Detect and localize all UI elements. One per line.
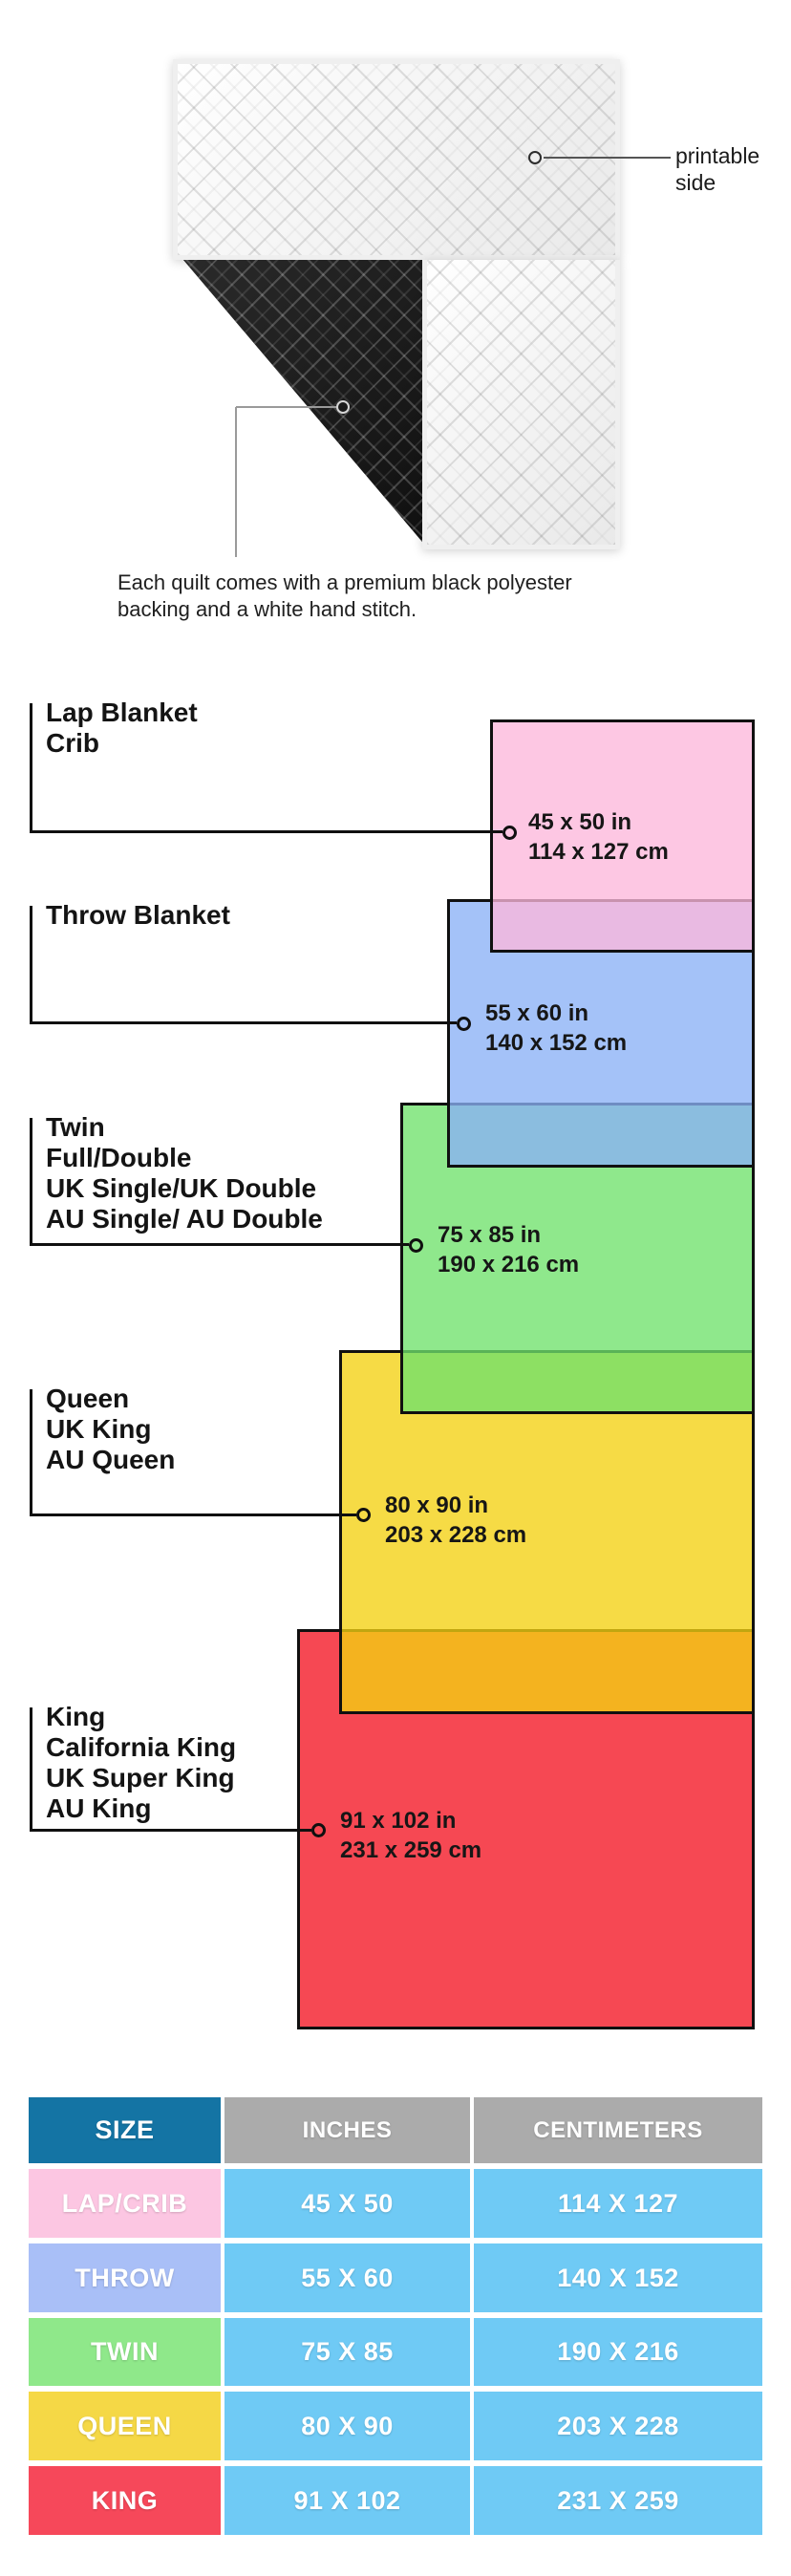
connector-line-king (30, 1829, 311, 1832)
quilt-front-lower-image (422, 260, 620, 549)
connector-dot-queen-icon (356, 1508, 371, 1522)
size-text-queen-inches: 80 x 90 in (385, 1491, 526, 1520)
printable-side-label-line1: printable (675, 142, 759, 169)
table-row-queen-size: QUEEN (29, 2392, 221, 2460)
size-text-twin: 75 x 85 in 190 x 216 cm (438, 1220, 579, 1279)
connector-dot-throw-icon (457, 1017, 471, 1031)
size-text-lap-inches: 45 x 50 in (528, 807, 669, 837)
quilt-caption-line2: backing and a white hand stitch. (118, 596, 572, 623)
table-row-throw-inches: 55 X 60 (224, 2243, 470, 2312)
label-twin-line4: AU Single/ AU Double (46, 1204, 323, 1234)
bracket-line-king (30, 1707, 32, 1832)
bracket-line-lap (30, 703, 32, 833)
size-text-queen: 80 x 90 in 203 x 228 cm (385, 1491, 526, 1550)
label-queen-line1: Queen (46, 1384, 175, 1414)
printable-side-callout-line (544, 157, 671, 159)
table-row-king-inches: 91 X 102 (224, 2466, 470, 2535)
bracket-line-queen (30, 1389, 32, 1516)
connector-dot-lap-icon (502, 826, 517, 840)
label-king-line3: UK Super King (46, 1763, 236, 1793)
bracket-line-throw (30, 906, 32, 1024)
label-twin: Twin Full/Double UK Single/UK Double AU … (46, 1112, 323, 1234)
label-king: King California King UK Super King AU Ki… (46, 1702, 236, 1824)
size-text-king-inches: 91 x 102 in (340, 1806, 481, 1835)
size-text-throw-inches: 55 x 60 in (485, 998, 627, 1028)
size-chart-infographic: printable side Each quilt comes with a p… (0, 0, 791, 2576)
table-row-twin-size: TWIN (29, 2318, 221, 2386)
backing-callout-dot-icon (336, 400, 350, 414)
table-row-king-size: KING (29, 2466, 221, 2535)
connector-line-lap (30, 830, 502, 833)
label-twin-line1: Twin (46, 1112, 323, 1143)
table-header-size: SIZE (29, 2097, 221, 2163)
label-twin-line3: UK Single/UK Double (46, 1173, 323, 1204)
table-row-throw-cm: 140 X 152 (474, 2243, 762, 2312)
size-text-twin-inches: 75 x 85 in (438, 1220, 579, 1250)
size-text-throw: 55 x 60 in 140 x 152 cm (485, 998, 627, 1058)
connector-line-throw (30, 1021, 457, 1024)
table-row-queen-cm: 203 X 228 (474, 2392, 762, 2460)
backing-callout-line-horizontal (236, 406, 336, 408)
connector-dot-king-icon (311, 1823, 326, 1837)
table-header-inches: INCHES (224, 2097, 470, 2163)
label-queen-line3: AU Queen (46, 1445, 175, 1475)
table-row-lap-size: LAP/CRIB (29, 2169, 221, 2238)
printable-side-label-line2: side (675, 169, 759, 196)
table-row-lap-cm: 114 X 127 (474, 2169, 762, 2238)
size-text-lap: 45 x 50 in 114 x 127 cm (528, 807, 669, 867)
label-lap-crib-line1: Lap Blanket (46, 698, 198, 728)
table-row-queen-inches: 80 X 90 (224, 2392, 470, 2460)
label-king-line4: AU King (46, 1793, 236, 1824)
size-text-throw-cm: 140 x 152 cm (485, 1028, 627, 1058)
label-throw-line1: Throw Blanket (46, 900, 230, 931)
size-text-lap-cm: 114 x 127 cm (528, 837, 669, 867)
size-text-king-cm: 231 x 259 cm (340, 1835, 481, 1865)
label-lap-crib-line2: Crib (46, 728, 198, 759)
size-table: SIZE INCHES CENTIMETERS LAP/CRIB 45 X 50… (29, 2097, 762, 2535)
quilt-caption: Each quilt comes with a premium black po… (118, 569, 572, 623)
printable-side-callout-dot-icon (528, 151, 542, 164)
label-throw: Throw Blanket (46, 900, 230, 931)
table-row-throw-size: THROW (29, 2243, 221, 2312)
connector-dot-twin-icon (409, 1238, 423, 1253)
size-text-king: 91 x 102 in 231 x 259 cm (340, 1806, 481, 1865)
label-king-line2: California King (46, 1732, 236, 1763)
backing-callout-line-vertical (235, 407, 237, 557)
printable-side-label: printable side (675, 142, 759, 196)
size-text-twin-cm: 190 x 216 cm (438, 1250, 579, 1279)
label-king-line1: King (46, 1702, 236, 1732)
table-row-twin-inches: 75 X 85 (224, 2318, 470, 2386)
table-header-centimeters: CENTIMETERS (474, 2097, 762, 2163)
label-lap-crib: Lap Blanket Crib (46, 698, 198, 759)
connector-line-twin (30, 1243, 409, 1246)
size-text-queen-cm: 203 x 228 cm (385, 1520, 526, 1550)
quilt-caption-line1: Each quilt comes with a premium black po… (118, 569, 572, 596)
label-queen-line2: UK King (46, 1414, 175, 1445)
bracket-line-twin (30, 1118, 32, 1246)
label-queen: Queen UK King AU Queen (46, 1384, 175, 1475)
quilt-black-backing-fold (183, 260, 422, 542)
connector-line-queen (30, 1513, 356, 1516)
table-row-king-cm: 231 X 259 (474, 2466, 762, 2535)
quilt-front-image (173, 59, 620, 260)
label-twin-line2: Full/Double (46, 1143, 323, 1173)
table-row-twin-cm: 190 X 216 (474, 2318, 762, 2386)
table-row-lap-inches: 45 X 50 (224, 2169, 470, 2238)
